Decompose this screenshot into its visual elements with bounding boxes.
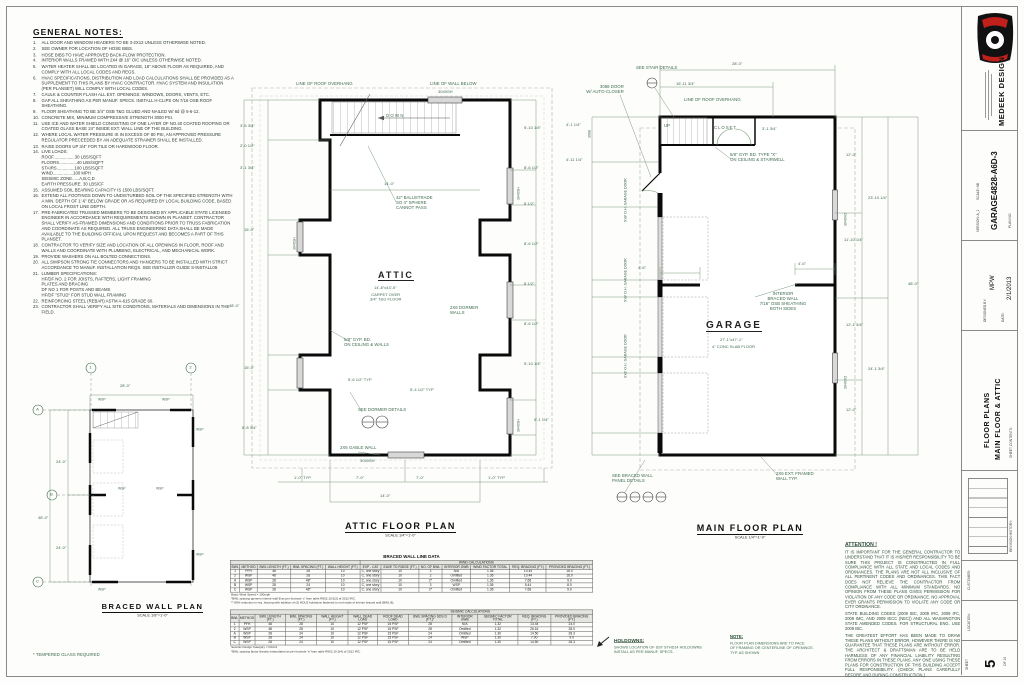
drawing-sheet: { "colors":{"annotation":"#3e6b4e","wall… — [0, 0, 1024, 683]
main-roof-overhang-label: LINE OF ROOF OVERHANG — [684, 98, 741, 103]
sheet-label: SHEET — [966, 659, 969, 670]
attic-plan-scale: SCALE 1/4"=1'-0" — [340, 534, 460, 538]
general-note-item: 1. ALL DOOR AND WINDOW HEADERS TO BE 3-2… — [33, 41, 234, 46]
garage-door-label-3: 9'x8' O.H. GARAGE DOOR — [624, 334, 628, 378]
wsp-label: WSP — [98, 398, 106, 402]
wsp-label: WSP — [196, 553, 204, 557]
garage-door-label-1: 9'x8' O.H. GARAGE DOOR — [624, 178, 628, 222]
general-note-item: 3. HOSE BIBS TO HAVE APPROVED BACK-FLOW … — [33, 53, 234, 58]
attic-dim-right-1: 5'-10 1/4" — [524, 126, 541, 130]
wsp-label: WSP — [118, 487, 126, 491]
attic-window-label-right-2: 3040SH — [517, 419, 521, 432]
note-text: FLOOR PLAN DIMENSIONS ARE TO FACE OF FRA… — [730, 641, 850, 655]
brand-name: MEDEEK DESIGN — [997, 57, 1006, 126]
holdowns-note: HOLDOWNS: SHOWS LOCATION OF SST STHD14 H… — [614, 634, 746, 655]
main-window-label-2: 3040XO — [844, 376, 848, 389]
attic-dim-left-3: 3'-1 3/4" — [240, 166, 255, 170]
holdown-arrow-icon — [596, 634, 612, 648]
grid-bubble-c: C — [33, 579, 42, 584]
attention-title: ATTENTION ! — [845, 541, 877, 547]
general-note-item: 13. RAISE DOORS UP 3/4" FOR TILE OR HARD… — [33, 144, 234, 149]
plan-no-label: PLAN NO. — [1009, 213, 1012, 228]
attic-room-floor: CARPET OVER 3/4" T&G FLOOR — [370, 293, 401, 302]
general-note-item: 10. CONCRETE MIX, MINIMUM COMPRESSIVE ST… — [33, 116, 234, 121]
attention-paragraph-2: STATE BUILDING CODES (2009 IBC, 2009 IRC… — [845, 612, 960, 632]
main-dim-right-7: 12'-0" — [846, 408, 856, 412]
attic-dim-left-2: 2'-0 1/2" — [240, 144, 255, 148]
attic-dim-14: 14'-0" — [384, 182, 394, 186]
main-gyp-note: 5/8" GYP. BD. TYPE "X" ON CEILING & STAI… — [730, 153, 785, 163]
attic-dim-left-1: 3'-5 3/4" — [240, 124, 255, 128]
main-plan-title: MAIN FLOOR PLAN SCALE 1/4"=1'-0" — [650, 518, 850, 542]
attic-dim-bottom-total: 14'-0" — [380, 494, 390, 498]
grid-bubble-2: 2 — [186, 365, 195, 370]
attic-dim-right-extra: 5'-1 1/4" — [534, 418, 549, 422]
main-dim-left-1: 4'-1 1/4" — [566, 123, 581, 127]
holdowns-text: SHOWS LOCATION OF SST STHD14 HOLDOWNS IN… — [614, 645, 746, 654]
main-dim-right-5: 12'-1 3/4" — [846, 323, 863, 327]
general-note-item: 5. WATER HEATER SHALL BE LOCATED IN GARA… — [33, 65, 234, 76]
date-value: 2/1/2013 — [1007, 277, 1013, 300]
main-dim-28: 28'-0" — [732, 62, 742, 66]
attic-plan-title: ATTIC FLOOR PLAN SCALE 1/4"=1'-0" — [308, 516, 493, 540]
attention-block: ATTENTION ! IT IS IMPORTANT FOR THE GENE… — [845, 538, 960, 680]
main-dim-right-6: 24'-1 3/4" — [868, 367, 885, 371]
stub-dim-right: 4'-6" — [798, 262, 806, 266]
attention-paragraph-1: IT IS IMPORTANT FOR THE GENERAL CONTRACT… — [845, 551, 960, 611]
tables-title: BRACED WALL LINE DATA — [230, 554, 593, 559]
wind-table-footnotes: Basic Wind Speed = 100mph*BWL spacing go… — [230, 593, 593, 605]
attic-window-label-left-1: 3040SH — [293, 237, 297, 250]
address-microtext — [985, 72, 986, 118]
see-braced-wall-panel-details: SEE BRACED WALL PANEL DETAILS — [612, 474, 653, 484]
sheet-contents-line-1: FLOOR PLANS — [984, 392, 991, 448]
braced-dim-left-1: 24'-0" — [56, 460, 66, 464]
designed-by-label: DESIGNED BY: — [984, 299, 987, 322]
stub-dim-left: 4'-6" — [638, 266, 646, 270]
sheet-contents-line-2: MAIN FLOOR & ATTIC — [995, 378, 1002, 460]
attic-dim-right-6: 8'-6 1/2" — [524, 322, 539, 326]
general-note-item: 21. LUMBER SPECIFICATIONS: HF/DF NO. 2 F… — [33, 272, 234, 299]
braced-plan-scale: SCALE 1/8"=1'-0" — [92, 614, 212, 618]
general-note-item: 9. FLOOR SHEATHING TO BE 3/4" OSB T&G GL… — [33, 110, 234, 115]
closet-label: CLOSET — [714, 126, 737, 131]
attic-typ-dim-1: 5'-6 1/2" TYP — [348, 378, 372, 382]
attic-dim-left-total: 48'-0" — [229, 304, 239, 308]
see-dormer-details: SEE DORMER DETAILS — [358, 408, 406, 413]
attic-dim-bottom-2: 7'-0" — [356, 476, 364, 480]
grid-bubble-1: 1 — [86, 365, 95, 370]
interior-braced-wall-note: INTERIOR BRACED WALL 7/16" OSB SHEATHING… — [752, 292, 814, 312]
entry-door-note: 3068 DOOR W/ AUTO-CLOSER — [568, 85, 624, 95]
customer-label: CUSTOMER: — [968, 570, 971, 590]
attic-dim-right-4: 8'-6 1/2" — [524, 242, 539, 246]
stair-down-label: DOWN — [386, 114, 405, 119]
wind-calculations-table: WIND CALCULATIONS BWLMETHODBWL LENGTH (F… — [230, 560, 593, 592]
garage-room-size: 27'-1"x47'-1" — [720, 338, 743, 342]
garage-room-floor: 4" CONC SLAB FLOOR — [712, 345, 755, 349]
braced-plan-title: BRACED WALL PLAN SCALE 1/8"=1'-0" — [60, 596, 245, 620]
general-note-item: 2. SEE OWNER FOR LOCATION OF HOSE BIBS. — [33, 47, 234, 52]
medeek-logo — [974, 10, 1016, 66]
version-label: VERSION: A_1 — [977, 210, 980, 232]
general-note-item: 14. LIVE LOADS: ROOF..................30… — [33, 150, 234, 187]
date-label: DATE: — [1002, 313, 1005, 322]
attic-dim-left-5: 15'-0" — [244, 366, 254, 370]
note-title: NOTE: — [730, 635, 743, 639]
attic-dim-right-3: 8 1/2" — [524, 202, 534, 206]
attic-dim-right-2: 8'-6 1/2" — [524, 166, 539, 170]
stair-up-label: UP — [664, 124, 670, 129]
revision-history-table — [968, 478, 1008, 554]
attic-window-label-right-1: 3040SH — [517, 187, 521, 200]
attic-wall-below-label: LINE OF WALL BELOW — [430, 82, 476, 87]
attic-gyp-note: 5/8" GYP. BD. ON CEILING & WALLS — [344, 338, 389, 348]
general-note-item: 19. PROVIDE WASHERS ON ALL BOLTED CONNEC… — [33, 255, 234, 260]
braced-dim-left-2: 24'-0" — [56, 546, 66, 550]
main-stairs — [661, 118, 707, 145]
braced-dim-top: 28'-0" — [120, 384, 130, 388]
general-note-item: 16. EXTEND ALL FOOTINGS DOWN TO UNDISTUR… — [33, 194, 234, 210]
seismic-calculations-table: SEISMIC CALCULATIONS BWLMETHODBWL LENGTH… — [230, 609, 593, 645]
attic-dim-left-6: 8'-8 3/4" — [242, 426, 257, 430]
main-dim-right-4: 48'-0" — [908, 282, 918, 286]
attic-dim-right-5: 8 1/2" — [524, 282, 534, 286]
sheet-of-label: OF 10 — [1004, 657, 1007, 666]
main-dim-left-2: 4'-11 1/4" — [566, 158, 583, 162]
general-note-item: 7. CAULK & COUNTER FLASH ALL EXT. OPENIN… — [33, 93, 234, 98]
main-dim-right-2: 23'-10 1/4" — [868, 196, 887, 200]
balustrade-note: 42" BALUSTRADE SO 4" SPHERE CANNOT PASS — [396, 196, 433, 211]
table-row: CWSP2848* 10C, one story102* Omitted1.36… — [230, 588, 592, 593]
main-dim-right-3: 11'-10 1/4" — [844, 238, 863, 242]
see-stair-details: SEE STAIR DETAILS — [636, 66, 677, 71]
revision-history-label: REVISION HISTORY: — [1010, 520, 1013, 552]
wsp-label: WSP — [156, 487, 164, 491]
general-note-item: 11. USE ICE AND WATER SHIELD CONSISTING … — [33, 122, 234, 133]
main-window-label-1: 3040XO — [844, 213, 848, 226]
general-note-item: 17. PRE-FABRICATED TRUSSED MEMBERS TO BE… — [33, 211, 234, 243]
general-note-item: 20. ALL SIMPSON STRONG TIE CONNECTORS AN… — [33, 261, 234, 272]
general-notes-title: GENERAL NOTES: — [33, 27, 123, 38]
garage-room-label: GARAGE — [706, 320, 762, 332]
entry-door-tag: 3068 — [588, 130, 592, 138]
general-notes-list: 1. ALL DOOR AND WINDOW HEADERS TO BE 3-2… — [33, 41, 234, 316]
ext-framed-wall-note: 2X6 EXT. FRAMED WALL TYP. — [776, 472, 814, 482]
attic-dim-bottom-1: 1'-0" TYP — [294, 476, 311, 480]
grid-bubble-b: B — [47, 492, 56, 497]
main-dim-right-1: 12'-0" — [846, 153, 856, 157]
dimension-note: NOTE: FLOOR PLAN DIMENSIONS ARE TO FACE … — [730, 630, 850, 656]
braced-wall-line-data: BRACED WALL LINE DATA WIND CALCULATIONS … — [230, 554, 593, 654]
dormer-walls-note: 2X6 DORMER WALLS — [450, 306, 478, 316]
attic-dim-bottom-4: 1'-0" TYP — [488, 476, 505, 480]
grid-bubble-a: A — [33, 407, 42, 412]
attic-dim-right-7: 5'-10 1/4" — [524, 362, 541, 366]
seismic-table-columns: BWLMETHODBWL LENGTH (FT.)BWL SPACING (FT… — [230, 614, 592, 622]
attic-typ-dim-2: 5'-4 1/2" TYP — [410, 388, 434, 392]
attic-roof-overhang-label: LINE OF ROOF OVERHANG — [296, 82, 353, 87]
location-label: LOCATION: — [968, 613, 971, 631]
general-note-item: 8. GAP ALL SHEATHING AS PER MANUF. SPECS… — [33, 99, 234, 110]
attic-window-label-bottom: 3040SH — [360, 459, 375, 463]
attic-room-size: 14'-8"x43'-5" — [374, 286, 397, 290]
wind-table-columns: BWLMETHODBWL LENGTH (FT.)BWL SPACING (FT… — [230, 565, 592, 570]
attic-dim-bottom-3: 7'-0" — [416, 476, 424, 480]
tempered-glass-footnote: * TEMPERED GLASS REQUIRED — [33, 653, 100, 658]
gable-wall-note: 2X6 GABLE WALL — [340, 446, 376, 451]
wsp-label: WSP — [98, 588, 106, 592]
general-note-item: 18. CONTRACTOR TO VERIFY SIZE AND LOCATI… — [33, 244, 234, 255]
wsp-label: WSP — [162, 398, 170, 402]
main-plan-scale: SCALE 1/4"=1'-0" — [685, 536, 815, 540]
sheet-contents-label: SHEET CONTENTS: — [1010, 427, 1013, 458]
plan-number: GARAGE4828-A6D-3 — [990, 151, 999, 230]
wsp-label: WSP — [196, 428, 204, 432]
general-note-item: 12. WHERE LOCAL WATER PRESSURE IS IN EXC… — [33, 133, 234, 144]
general-note-item: 4. INTERIOR WALLS FRAMED WITH 2X4 @ 16" … — [33, 59, 234, 64]
general-note-item: 6. HVAC SPECIFICATIONS, DISTRIBUTION AND… — [33, 76, 234, 92]
holdowns-title: HOLDOWNS: — [614, 638, 644, 643]
general-note-item: 22. REINFORCING STEEL (REBAR) ASTM A-615… — [33, 299, 234, 304]
entry-door-leaf — [642, 173, 660, 191]
closet-dim: 3'-1 3/4" — [762, 127, 777, 131]
designed-by-value: MPW — [990, 275, 996, 290]
attic-dim-left-4: 15'-0" — [244, 228, 254, 232]
sheet-number: 5 — [982, 660, 999, 668]
seismic-table-footnotes: Seismic Design Category = D0-D1*BWL spac… — [230, 646, 593, 654]
attic-window-label-top: 3040SH — [438, 90, 453, 94]
general-note-item: 23. CONTRACTOR SHALL VERIFY ALL SITE CON… — [33, 305, 234, 316]
attic-room-label: ATTIC — [378, 270, 414, 281]
general-note-item: 15. ASSUMED SOIL BEARING CAPACITY IS 150… — [33, 188, 234, 193]
table-row: CWSP2824 1012 PSF15 PSF24 Omitted1.3014.… — [230, 641, 592, 646]
scale-label: SCALE: NB — [977, 183, 980, 200]
main-dim-16-11: 16'-11 3/4" — [676, 82, 695, 86]
attention-paragraph-3: THE GREATEST EFFORT HAS BEEN MADE TO DRA… — [845, 634, 960, 679]
garage-door-label-2: 9'x8' O.H. GARAGE DOOR — [624, 258, 628, 302]
braced-dim-left-total: 48'-0" — [38, 516, 48, 520]
